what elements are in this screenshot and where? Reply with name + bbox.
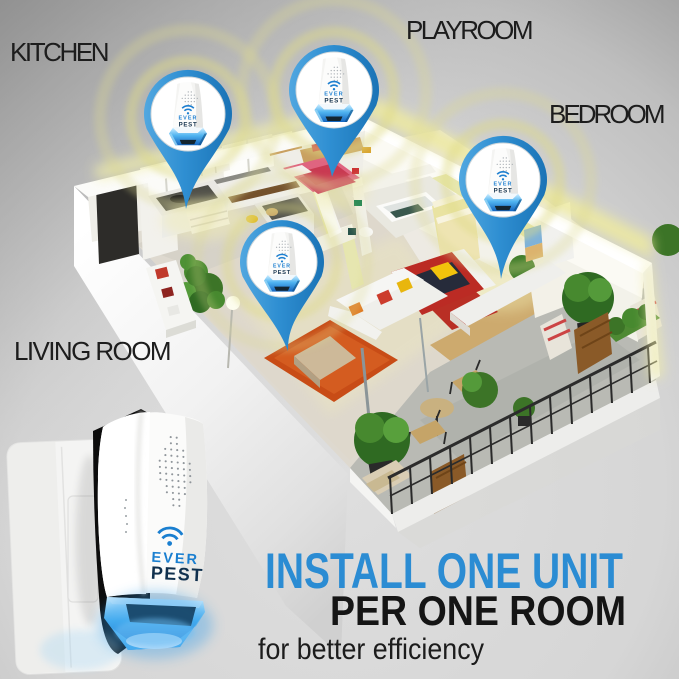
svg-text:for better efficiency: for better efficiency — [258, 633, 484, 666]
svg-text:KITCHEN: KITCHEN — [10, 37, 110, 67]
svg-text:LIVING ROOM: LIVING ROOM — [14, 336, 172, 366]
svg-text:PEST: PEST — [150, 563, 204, 586]
svg-text:BEDROOM: BEDROOM — [549, 99, 666, 129]
svg-text:PLAYROOM: PLAYROOM — [406, 15, 534, 45]
svg-text:PER ONE ROOM: PER ONE ROOM — [330, 587, 626, 634]
